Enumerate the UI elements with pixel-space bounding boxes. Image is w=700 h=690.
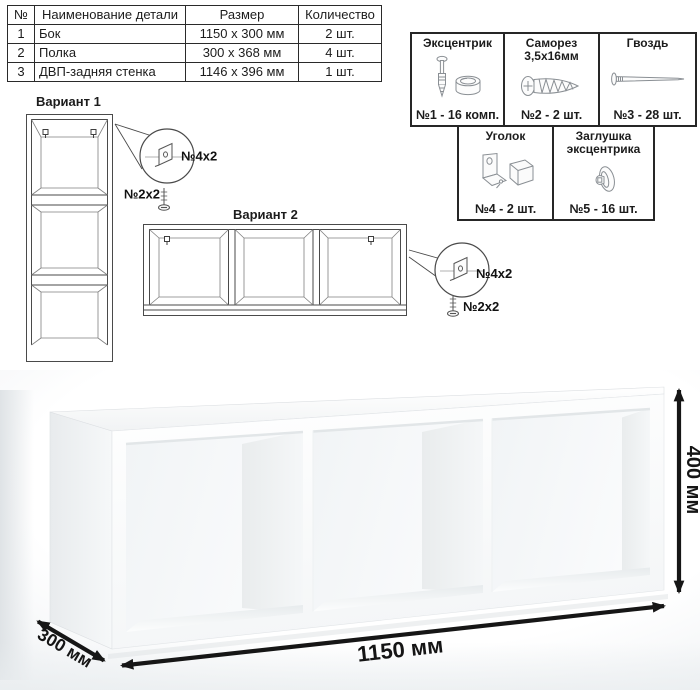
parts-table: № Наименование детали Размер Количество … [7, 5, 382, 82]
corner-bracket-icon [475, 143, 537, 202]
compartment [492, 408, 650, 592]
side-panel [50, 412, 112, 649]
height-dimension-label: 400 мм [682, 446, 700, 515]
col-size: Размер [186, 6, 299, 25]
hardware-box: Эксцентрик №1 - 16 комп. Саморез 3,5х16м… [410, 32, 697, 221]
col-num: № [8, 6, 35, 25]
variant2-drawing: №4х2 №2х2 [140, 200, 520, 335]
col-name: Наименование детали [35, 6, 186, 25]
variant2-screw-label: №2х2 [463, 299, 499, 314]
hardware-item-eccentric-cap: Заглушка эксцентрика №5 - 16 шт. [552, 125, 655, 221]
screw-icon [520, 64, 584, 108]
compartment [313, 419, 483, 612]
eccentric-cap-icon [584, 157, 624, 202]
variant1-bracket-label: №4х2 [181, 149, 217, 164]
variant2-bracket-label: №4х2 [476, 266, 512, 281]
variant1-title: Вариант 1 [36, 94, 101, 109]
compartment [126, 431, 303, 632]
table-row: 3 ДВП-задняя стенка 1146 x 396 мм 1 шт. [8, 63, 382, 82]
table-row: 2 Полка 300 x 368 мм 4 шт. [8, 44, 382, 63]
nail-icon [610, 50, 686, 108]
assembled-shelf-render: 1150 мм 400 мм 300 мм [0, 370, 700, 690]
hardware-item-screw: Саморез 3,5х16мм №2 - 2 шт. [503, 32, 600, 127]
hardware-item-nail: Гвоздь №3 - 28 шт. [598, 32, 697, 127]
table-row: 1 Бок 1150 x 300 мм 2 шт. [8, 25, 382, 44]
hardware-item-eccentric: Эксцентрик №1 - 16 комп. [410, 32, 505, 127]
col-qty: Количество [299, 6, 382, 25]
parts-table-header: № Наименование детали Размер Количество [8, 6, 382, 25]
eccentric-cam-icon [430, 50, 486, 108]
callout-screw [448, 295, 459, 316]
